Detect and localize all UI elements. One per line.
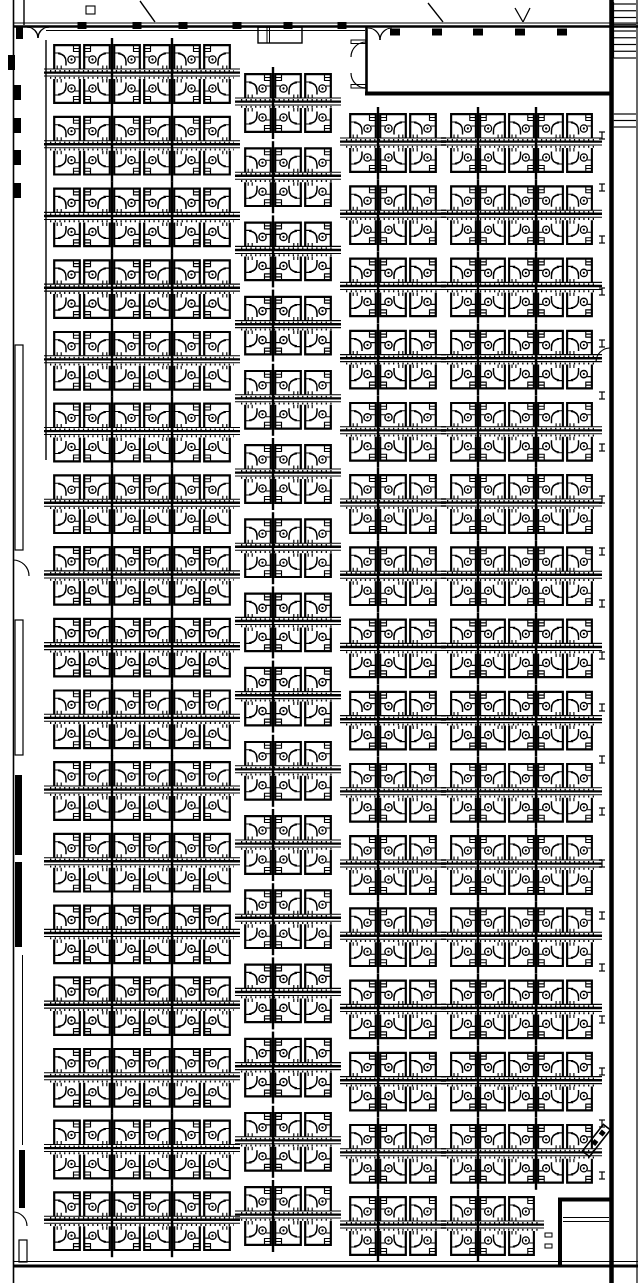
floor-plan-page bbox=[0, 0, 640, 1283]
window-mullion bbox=[390, 29, 400, 36]
wall-column bbox=[19, 1150, 25, 1208]
window-mullion bbox=[557, 29, 567, 36]
window-mullion bbox=[473, 29, 483, 36]
wall-column bbox=[14, 85, 21, 100]
window-mullion bbox=[179, 22, 188, 29]
window-mullion bbox=[233, 22, 242, 29]
floor-plan-canvas bbox=[0, 0, 640, 1283]
window-mullion bbox=[133, 22, 142, 29]
wall-column bbox=[16, 27, 23, 39]
wall-column bbox=[14, 118, 21, 133]
wall-column bbox=[8, 55, 15, 70]
wall-column bbox=[14, 183, 21, 198]
wall-column bbox=[15, 775, 22, 855]
window-mullion bbox=[338, 22, 347, 29]
wall-column bbox=[15, 862, 22, 947]
window-mullion bbox=[284, 22, 293, 29]
window-mullion bbox=[432, 29, 442, 36]
window-mullion bbox=[78, 22, 87, 29]
window-mullion bbox=[515, 29, 525, 36]
wall-column bbox=[14, 150, 21, 165]
